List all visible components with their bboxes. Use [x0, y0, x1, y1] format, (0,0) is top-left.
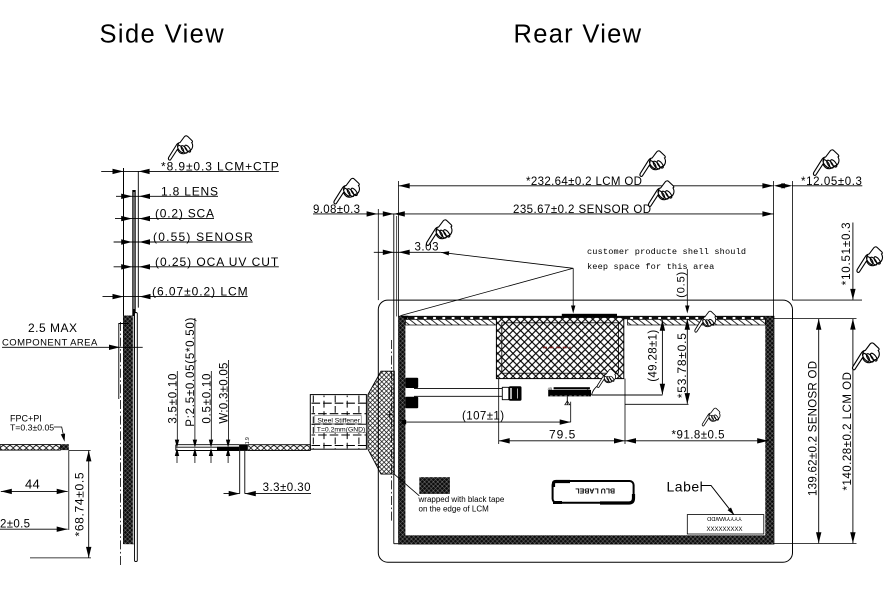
svg-text:(0.2) SCA: (0.2) SCA [155, 207, 215, 221]
svg-text:(49.28±1): (49.28±1) [648, 329, 660, 381]
svg-text:235.67±0.2 SENSOR OD: 235.67±0.2 SENSOR OD [513, 204, 651, 216]
svg-text:keep space for this area: keep space for this area [587, 262, 714, 272]
svg-text:(0.5): (0.5) [675, 271, 687, 298]
svg-text:139.62±0.2 SENOSR OD: 139.62±0.2 SENOSR OD [807, 361, 819, 496]
svg-text:*12.05±0.3: *12.05±0.3 [801, 176, 863, 188]
svg-text:T=0.2mm(GND): T=0.2mm(GND) [317, 426, 366, 433]
svg-text:Rear View: Rear View [514, 21, 643, 49]
svg-text:*8.9±0.3 LCM+CTP: *8.9±0.3 LCM+CTP [161, 159, 280, 173]
svg-text:T=0.3±0.05: T=0.3±0.05 [10, 423, 54, 433]
svg-text:XXXXXXXXX: XXXXXXXXX [706, 527, 742, 533]
svg-text:1.8 LENS: 1.8 LENS [161, 184, 219, 198]
svg-text:*68.74±0.5: *68.74±0.5 [73, 472, 87, 537]
svg-text:(6.07±0.2) LCM: (6.07±0.2) LCM [152, 285, 249, 299]
svg-text:YYYYWWDD: YYYYWWDD [707, 515, 742, 521]
svg-text:(0.25) OCA UV CUT: (0.25) OCA UV CUT [155, 255, 279, 269]
svg-text:1.9: 1.9 [245, 437, 251, 444]
svg-text:9.08±0.3: 9.08±0.3 [313, 204, 360, 216]
svg-text:*10.51±0.3: *10.51±0.3 [841, 222, 853, 286]
svg-text:*232.64±0.2 LCM OD: *232.64±0.2 LCM OD [526, 176, 642, 188]
svg-text:(0.55) SENOSR: (0.55) SENOSR [153, 230, 254, 244]
svg-text:(107±1): (107±1) [462, 411, 505, 423]
svg-text:44: 44 [25, 476, 40, 491]
svg-text:customer producte shell should: customer producte shell should [587, 247, 746, 257]
svg-text:*140.28±0.2 LCM OD: *140.28±0.2 LCM OD [842, 372, 854, 491]
svg-text:2±0.5: 2±0.5 [0, 518, 30, 530]
svg-text:Steel Stiffener: Steel Stiffener [317, 417, 360, 424]
svg-text:BLU LABEL: BLU LABEL [575, 487, 615, 494]
svg-text:Side View: Side View [100, 21, 226, 49]
svg-text:Label: Label [667, 479, 704, 495]
svg-text:on the edge of LCM: on the edge of LCM [419, 504, 490, 513]
svg-text:2.5 MAX: 2.5 MAX [28, 321, 78, 335]
svg-text:wrapped with black tape: wrapped with black tape [418, 495, 505, 504]
svg-text:45: 45 [548, 386, 553, 391]
svg-text:3.3±0.30: 3.3±0.30 [263, 482, 311, 494]
svg-text:*91.8±0.5: *91.8±0.5 [672, 429, 725, 441]
svg-text:79.5: 79.5 [549, 427, 576, 441]
